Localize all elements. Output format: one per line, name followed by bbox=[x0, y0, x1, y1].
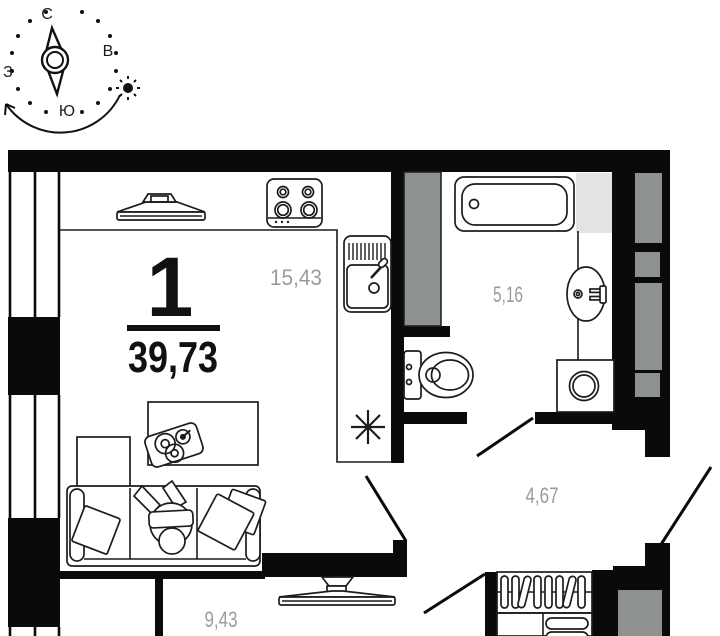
ventilation-shaft-right-3 bbox=[635, 283, 662, 370]
compass-south-label: Ю bbox=[59, 103, 75, 120]
hallway-area-label: 4,67 bbox=[526, 483, 559, 508]
shoe-shelf-item bbox=[546, 632, 588, 636]
ventilation-shaft-right-1 bbox=[635, 173, 662, 243]
wardrobe bbox=[497, 572, 592, 636]
bathroom-door bbox=[477, 418, 533, 456]
wall-bath-bottom-right bbox=[535, 412, 612, 424]
living-room-door bbox=[366, 476, 406, 541]
entrance-door bbox=[660, 467, 711, 546]
cassette-player-icon bbox=[143, 421, 205, 469]
wall-terrace-divider bbox=[155, 578, 163, 636]
compass-east-label: В bbox=[103, 43, 114, 60]
bathtub-icon bbox=[455, 177, 574, 231]
window-1 bbox=[10, 172, 59, 317]
shoe-shelf-item bbox=[546, 618, 588, 629]
compass-north-label: С bbox=[41, 6, 53, 23]
compass-rose: С В З Ю bbox=[3, 6, 140, 133]
wall-closet-right bbox=[592, 570, 617, 636]
wall-terrace-thin bbox=[60, 571, 265, 579]
air-conditioner-icon bbox=[351, 410, 385, 444]
wall-living-terrace bbox=[262, 553, 407, 577]
kitchen-sink-icon bbox=[344, 236, 391, 312]
ventilation-shaft-right-4 bbox=[635, 373, 660, 397]
bathtub-niche bbox=[576, 173, 612, 233]
window-3 bbox=[10, 627, 59, 636]
sofa-chaise bbox=[77, 437, 130, 487]
wall-bath-bottom-left bbox=[404, 412, 467, 424]
washing-machine-icon bbox=[557, 360, 614, 412]
wall-entry-jamb-top bbox=[645, 430, 670, 457]
kitchen: 15,43 bbox=[60, 179, 391, 462]
wall-living-door-stub bbox=[393, 540, 407, 560]
tv-icon bbox=[279, 577, 395, 605]
kitchen-counter bbox=[60, 230, 391, 462]
apartment-label: 1 39,73 bbox=[127, 240, 220, 382]
floor-plan-drawing: С В З Ю bbox=[0, 0, 720, 636]
kitchen-living-area-label: 15,43 bbox=[270, 265, 322, 290]
washbasin-icon bbox=[567, 231, 606, 360]
wall-kitchen-bath bbox=[391, 172, 404, 463]
apartment-total-area: 39,73 bbox=[128, 333, 218, 382]
wall-left-mid bbox=[8, 317, 60, 395]
stove-icon bbox=[267, 179, 322, 227]
ventilation-shaft-right-2 bbox=[635, 252, 660, 277]
wall-top bbox=[8, 150, 670, 172]
window-2 bbox=[10, 395, 59, 518]
ventilation-shaft-kitchen bbox=[404, 172, 441, 326]
apartment-label-divider bbox=[127, 325, 220, 331]
compass-west-label: З bbox=[3, 64, 13, 81]
wall-closet-left bbox=[485, 572, 497, 636]
cooker-hood-icon bbox=[117, 194, 205, 220]
bathroom-area-label: 5,16 bbox=[493, 282, 523, 307]
compass-needle-icon bbox=[42, 28, 68, 94]
closet-door bbox=[424, 574, 485, 613]
coffee-table bbox=[143, 402, 258, 470]
room-area-label: 9,43 bbox=[205, 607, 238, 632]
wall-shaft-cap bbox=[391, 326, 450, 337]
apartment-number: 1 bbox=[147, 240, 194, 334]
wall-left-low bbox=[8, 518, 60, 627]
toilet-icon bbox=[404, 351, 473, 399]
ventilation-shaft-entry bbox=[618, 590, 662, 636]
floor-plan-page: С В З Ю bbox=[0, 0, 720, 636]
